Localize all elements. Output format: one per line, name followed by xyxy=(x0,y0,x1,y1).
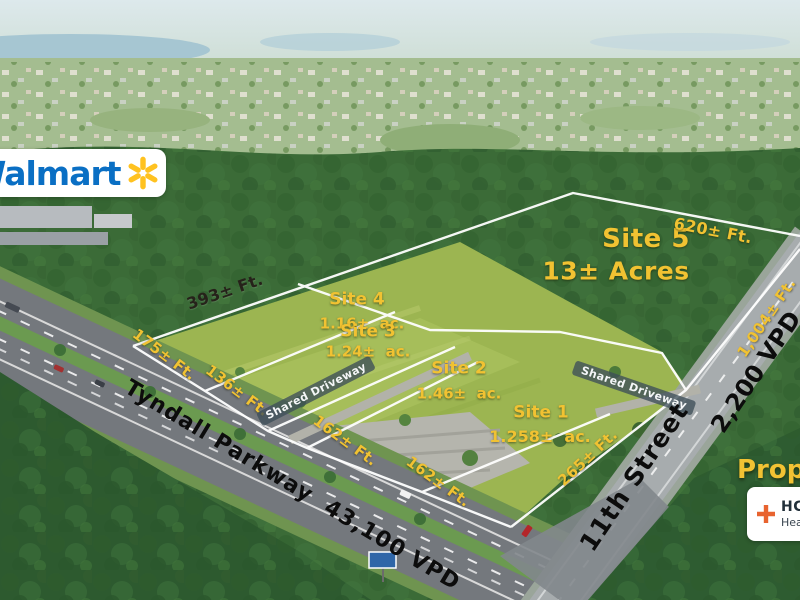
site1-label: Site 1 xyxy=(513,405,568,422)
site2-label: Site 2 xyxy=(431,361,486,378)
walmart-wordmark: Walmart xyxy=(0,154,121,193)
site5-acreage: 13± Acres xyxy=(542,259,689,284)
proposed-label: Prop xyxy=(737,455,800,485)
walmart-logo: Walmart xyxy=(0,149,166,197)
site3-label: Site 3 xyxy=(340,324,395,341)
hca-subtext: Hea xyxy=(781,516,800,529)
aerial-photograph xyxy=(0,0,800,600)
hca-wordmark: HCA xyxy=(781,499,800,515)
aerial-site-map: Walmart Site 5 13± Acres Site 4 1.16± ac… xyxy=(0,0,800,600)
hca-logo-card: HCA Hea xyxy=(747,487,800,541)
site1-acreage: 1.258± ac. xyxy=(489,429,591,445)
distant-suburbs xyxy=(0,58,800,162)
hca-cross-icon xyxy=(756,504,776,524)
site2-acreage: 1.46± ac. xyxy=(417,387,502,402)
site4-label: Site 4 xyxy=(329,292,384,309)
walmart-spark-icon xyxy=(126,156,160,190)
